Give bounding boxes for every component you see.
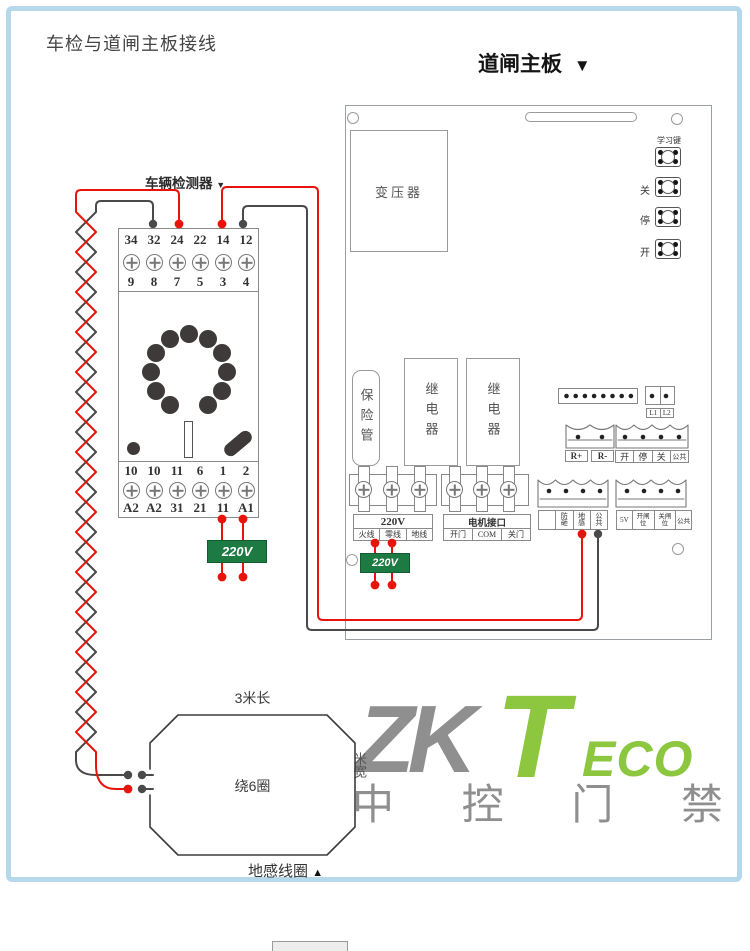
mount-hole-tr: [671, 113, 683, 125]
wire-label-neutral: 零线: [379, 528, 406, 541]
coil-width-label: 米宽: [350, 752, 369, 778]
board-title: 道闸主板 ▼: [478, 48, 591, 78]
partial-box: [272, 941, 348, 951]
relay2-label: 继电器: [484, 382, 503, 442]
terminal-number: 6: [188, 464, 212, 478]
l-terminal-block: [645, 386, 675, 405]
motor-com-label: COM: [472, 528, 502, 541]
terminal-number: 24: [165, 233, 189, 247]
sense-labels: 防砸 地感 公共: [538, 510, 608, 530]
terminal-screw: [383, 481, 400, 498]
terminal-label: A2: [119, 501, 143, 515]
terminal-screw: [146, 482, 163, 499]
motor-block-title: 电机接口: [443, 514, 531, 529]
terminal-number: 10: [142, 464, 166, 478]
terminal-screw: [169, 254, 186, 271]
mount-hole-tl: [347, 112, 359, 124]
socket-pin-dot: [218, 363, 236, 381]
coil-name-label: 地感线圈 ▲: [248, 860, 323, 881]
socket-pin-dot: [161, 396, 179, 414]
open-limit-label: 开闸位: [632, 510, 655, 530]
detector-220v-tag: 220V: [207, 540, 267, 563]
terminal-screw: [238, 482, 255, 499]
terminal-pin: 5: [188, 275, 212, 289]
terminal-label: 11: [211, 501, 235, 515]
socket-pin-dot: [161, 330, 179, 348]
socket-pin-dot: [213, 382, 231, 400]
terminal-number: 2: [234, 464, 258, 478]
close-button-label: 关: [640, 182, 650, 197]
coil-length-label: 3米长: [210, 688, 295, 708]
socket-pin-dot: [142, 363, 160, 381]
terminal-number: 14: [211, 233, 235, 247]
wire-label-ground: 地线: [406, 528, 433, 541]
loop-sensor-label: 地感: [573, 510, 591, 530]
stop-button-label: 停: [640, 212, 650, 227]
terminal-screw: [215, 254, 232, 271]
terminal-label: A2: [142, 501, 166, 515]
terminal-pin: 4: [234, 275, 258, 289]
mainboard-top-slot: [525, 112, 637, 122]
power-block-title: 220V: [353, 514, 433, 529]
detector-title-text: 车辆检测器: [145, 176, 213, 191]
l1-pin: [645, 386, 661, 405]
terminal-number: 10: [119, 464, 143, 478]
sense-common-label: 公共: [590, 510, 608, 530]
terminal-screw: [411, 481, 428, 498]
coil-turns-label: 绕6圈: [210, 776, 295, 796]
zkteco-logo-zk: ZK: [356, 692, 470, 788]
detector-slot: [184, 421, 193, 458]
relay2-box: 继电器: [466, 358, 520, 466]
transformer-label: 变压器: [375, 182, 423, 201]
terminal-screw: [123, 482, 140, 499]
terminal-screw: [169, 482, 186, 499]
detector-divider-top: [118, 291, 259, 292]
detector-index-dot: [127, 442, 140, 455]
fuse-label: 保险管: [357, 388, 376, 448]
socket-pin-dot: [180, 325, 198, 343]
board-220v-tag: 220V: [360, 553, 410, 573]
zkteco-logo-t: T: [496, 678, 568, 796]
limit-labels: 5V 开闸位 关闸位 公共: [616, 510, 692, 530]
terminal-screw: [146, 254, 163, 271]
terminal-screw: [192, 254, 209, 271]
detector-top-numbers: 34 32 24 22 14 12: [119, 233, 258, 247]
cmd-labels: 开 停 关 公共: [615, 450, 689, 463]
socket-pin-dot: [213, 344, 231, 362]
socket-pin-dot: [199, 330, 217, 348]
sense-blank-label: [538, 510, 556, 530]
power-block-cells: 火线 零线 地线: [353, 528, 433, 541]
terminal-screw: [500, 481, 517, 498]
l2-label: L2: [660, 408, 675, 418]
detector-title: 车辆检测器 ▼: [145, 172, 225, 192]
mount-hole-bl: [346, 554, 358, 566]
open-button: [655, 239, 681, 259]
relay1-label: 继电器: [422, 382, 441, 442]
learn-button-label: 学习键: [650, 135, 688, 146]
limit-5v-label: 5V: [616, 510, 633, 530]
terminal-label: 21: [188, 501, 212, 515]
zkteco-logo-eco: ECO: [582, 734, 693, 784]
terminal-pin: 7: [165, 275, 189, 289]
r-plus-label: R+: [565, 450, 588, 462]
terminal-screw: [215, 482, 232, 499]
terminal-number: 11: [165, 464, 189, 478]
l1-label: L1: [646, 408, 661, 418]
board-title-text: 道闸主板: [478, 53, 562, 76]
learn-button: [655, 147, 681, 167]
open-button-label: 开: [640, 244, 650, 259]
triangle-down-icon: ▼: [216, 180, 225, 190]
terminal-screw: [473, 481, 490, 498]
detector-top-pins: 9 8 7 5 3 4: [119, 275, 258, 289]
motor-block-cells: 开门 COM 关门: [443, 528, 531, 541]
fuse-box: 保险管: [352, 370, 380, 466]
terminal-label: A1: [234, 501, 258, 515]
socket-pin-dot: [199, 396, 217, 414]
anti-smash-label: 防砸: [555, 510, 573, 530]
cmd-close-label: 关: [652, 450, 671, 463]
coil-name-text: 地感线圈: [248, 863, 308, 880]
terminal-screw: [192, 482, 209, 499]
page-title: 车检与道闸主板接线: [46, 30, 217, 56]
pin-header-8: [558, 388, 638, 404]
r-minus-label: R-: [591, 450, 614, 462]
cmd-open-label: 开: [615, 450, 634, 463]
relay1-box: 继电器: [404, 358, 458, 466]
close-button: [655, 177, 681, 197]
transformer-box: 变压器: [350, 130, 448, 252]
terminal-pin: 8: [142, 275, 166, 289]
terminal-number: 1: [211, 464, 235, 478]
detector-bottom-numbers: 10 10 11 6 1 2: [119, 464, 258, 478]
terminal-number: 32: [142, 233, 166, 247]
wire-label-live: 火线: [353, 528, 380, 541]
motor-close-label: 关门: [501, 528, 531, 541]
terminal-screw: [238, 254, 255, 271]
terminal-screw: [355, 481, 372, 498]
triangle-up-icon: ▲: [312, 867, 323, 879]
cmd-common-label: 公共: [670, 450, 689, 463]
terminal-number: 22: [188, 233, 212, 247]
terminal-number: 34: [119, 233, 143, 247]
zkteco-logo-cn: 中 控 门 禁: [352, 784, 723, 826]
socket-pin-dot: [147, 382, 165, 400]
terminal-pin: 9: [119, 275, 143, 289]
l-labels: L1 L2: [646, 408, 674, 418]
socket-pin-dot: [147, 344, 165, 362]
detector-divider-bottom: [118, 461, 259, 462]
terminal-pin: 3: [211, 275, 235, 289]
terminal-label: 31: [165, 501, 189, 515]
terminal-screw: [446, 481, 463, 498]
l2-pin: [660, 386, 676, 405]
terminal-screw: [123, 254, 140, 271]
limit-common-label: 公共: [675, 510, 692, 530]
diagram-canvas: ZK T ECO 中 控 门 禁 车检与道闸主板接线 道闸主板 ▼ 车辆检测器 …: [0, 0, 750, 951]
stop-button: [655, 207, 681, 227]
motor-open-label: 开门: [443, 528, 473, 541]
close-limit-label: 关闸位: [654, 510, 677, 530]
mount-hole-br: [672, 543, 684, 555]
triangle-down-icon: ▼: [574, 56, 591, 75]
detector-bottom-labels: A2 A2 31 21 11 A1: [119, 501, 258, 515]
cmd-stop-label: 停: [633, 450, 652, 463]
terminal-number: 12: [234, 233, 258, 247]
